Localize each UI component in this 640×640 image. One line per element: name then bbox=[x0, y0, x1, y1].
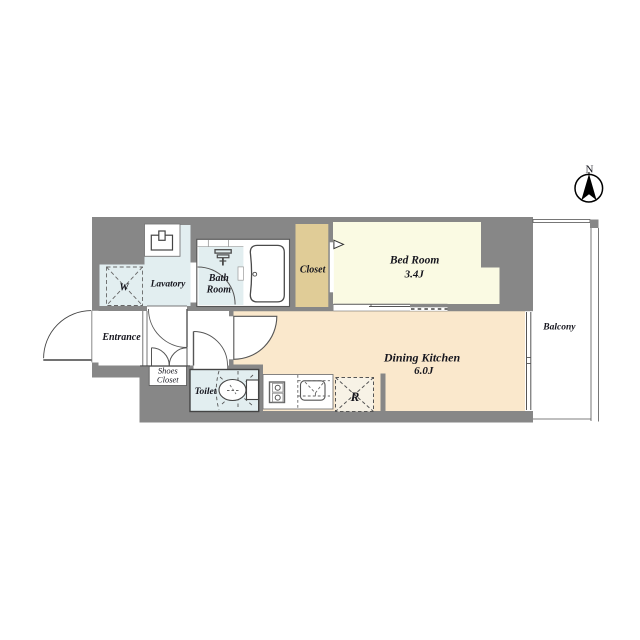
svg-text:Closet: Closet bbox=[300, 264, 327, 275]
svg-text:Balcony: Balcony bbox=[542, 323, 576, 333]
svg-text:R: R bbox=[350, 389, 360, 404]
svg-text:6.0J: 6.0J bbox=[414, 365, 434, 377]
svg-text:Room: Room bbox=[206, 285, 232, 296]
svg-text:Bath: Bath bbox=[208, 273, 229, 284]
svg-text:Lavatory: Lavatory bbox=[150, 280, 187, 290]
svg-text:Closet: Closet bbox=[157, 374, 179, 384]
svg-text:Entrance: Entrance bbox=[101, 332, 141, 343]
svg-text:N: N bbox=[586, 164, 594, 176]
svg-text:Dining Kitchen: Dining Kitchen bbox=[383, 351, 461, 365]
svg-text:3.4J: 3.4J bbox=[404, 269, 425, 281]
svg-text:Bed Room: Bed Room bbox=[389, 254, 440, 266]
svg-text:Toilet: Toilet bbox=[195, 387, 217, 397]
svg-text:W: W bbox=[119, 283, 129, 294]
